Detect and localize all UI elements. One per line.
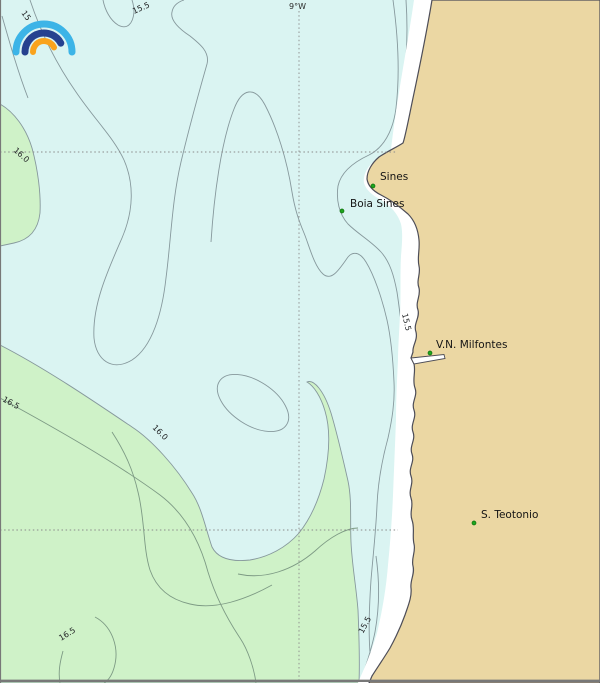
place-label-boia-sines: Boia Sines (350, 198, 404, 210)
place-marker-sines (371, 184, 375, 188)
place-label-sines: Sines (380, 171, 408, 183)
place-marker-vn-milfontes (428, 351, 432, 355)
place-label-vn-milfontes: V.N. Milfontes (436, 339, 507, 351)
map-canvas[interactable]: 9°W 15 15.5 16.0 16.5 16.0 15.5 16.5 15.… (0, 0, 600, 683)
sst-map: 9°W 15 15.5 16.0 16.5 16.0 15.5 16.5 15.… (0, 0, 600, 683)
place-marker-boia-sines (340, 209, 344, 213)
place-marker-s-teotonio (472, 521, 476, 525)
meridian-label: 9°W (289, 2, 306, 11)
place-label-s-teotonio: S. Teotonio (481, 509, 538, 521)
